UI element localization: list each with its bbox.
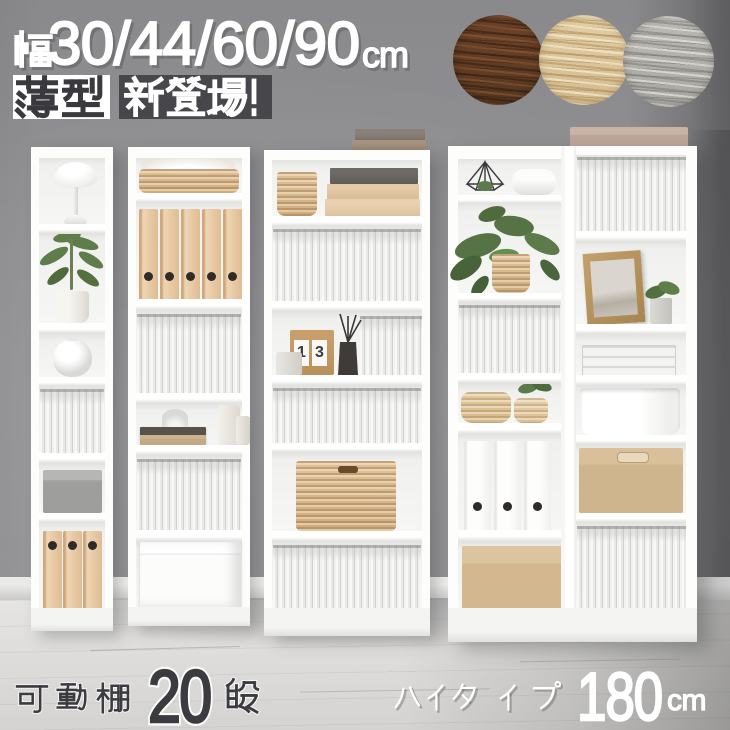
svg-text:30/44/60/90: 30/44/60/90: [48, 12, 359, 77]
svg-text:cm: cm: [667, 684, 706, 717]
svg-text:20: 20: [148, 658, 211, 728]
svg-text:cm: cm: [362, 34, 408, 75]
svg-text:180: 180: [577, 660, 662, 730]
